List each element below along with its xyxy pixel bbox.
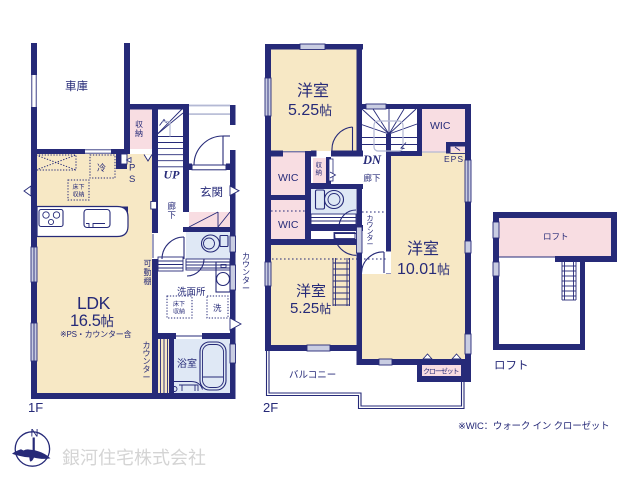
svg-text:洋室: 洋室 <box>297 82 329 100</box>
svg-text:床下: 床下 <box>73 183 85 191</box>
svg-text:洋室: 洋室 <box>407 240 439 258</box>
svg-text:収納: 収納 <box>73 191 85 199</box>
svg-text:S: S <box>129 174 135 185</box>
svg-text:ー: ー <box>367 242 374 249</box>
svg-text:納: 納 <box>316 168 323 177</box>
svg-text:棚: 棚 <box>144 276 152 286</box>
svg-text:ロフト: ロフト <box>494 360 529 372</box>
svg-text:DN: DN <box>362 153 382 167</box>
svg-text:ー: ー <box>242 284 250 293</box>
svg-text:WIC: WIC <box>278 219 299 231</box>
svg-text:P: P <box>129 163 135 174</box>
svg-text:収納: 収納 <box>173 308 185 316</box>
svg-text:ー: ー <box>143 373 151 382</box>
svg-text:5.25帖: 5.25帖 <box>288 102 332 119</box>
svg-text:洋室: 洋室 <box>296 283 326 300</box>
svg-text:EPS: EPS <box>444 154 464 164</box>
svg-text:LDK: LDK <box>77 293 111 313</box>
svg-text:洗面所: 洗面所 <box>177 286 206 298</box>
svg-text:可: 可 <box>144 259 152 268</box>
svg-text:1F: 1F <box>28 400 43 415</box>
svg-text:車庫: 車庫 <box>65 79 88 93</box>
svg-text:収: 収 <box>316 161 323 169</box>
svg-text:動: 動 <box>144 268 152 277</box>
svg-text:銀河住宅株式会社: 銀河住宅株式会社 <box>62 448 206 468</box>
svg-text:クローゼット: クローゼット <box>423 367 458 376</box>
svg-text:下: 下 <box>168 210 177 220</box>
svg-text:廊下: 廊下 <box>364 173 382 183</box>
svg-text:浴室: 浴室 <box>177 357 197 370</box>
svg-text:玄関: 玄関 <box>200 185 223 199</box>
svg-text:2F: 2F <box>263 400 278 415</box>
svg-text:※WIC：ウォーク イン クローゼット: ※WIC：ウォーク イン クローゼット <box>458 420 609 432</box>
svg-text:冷: 冷 <box>97 162 106 173</box>
svg-text:バルコニー: バルコニー <box>289 370 336 381</box>
svg-text:UP: UP <box>164 168 181 182</box>
svg-text:N: N <box>31 428 39 440</box>
svg-text:5.25帖: 5.25帖 <box>290 300 331 317</box>
svg-text:※PS・カウンター含: ※PS・カウンター含 <box>60 329 132 339</box>
svg-text:10.01帖: 10.01帖 <box>397 261 450 278</box>
svg-text:ロフト: ロフト <box>543 232 569 242</box>
svg-text:16.5帖: 16.5帖 <box>70 312 114 330</box>
svg-text:収: 収 <box>135 119 143 129</box>
svg-text:WIC: WIC <box>430 120 451 132</box>
svg-text:洗: 洗 <box>213 303 222 313</box>
svg-text:床下: 床下 <box>173 300 185 308</box>
svg-text:納: 納 <box>135 128 143 138</box>
svg-text:WIC: WIC <box>278 172 299 184</box>
